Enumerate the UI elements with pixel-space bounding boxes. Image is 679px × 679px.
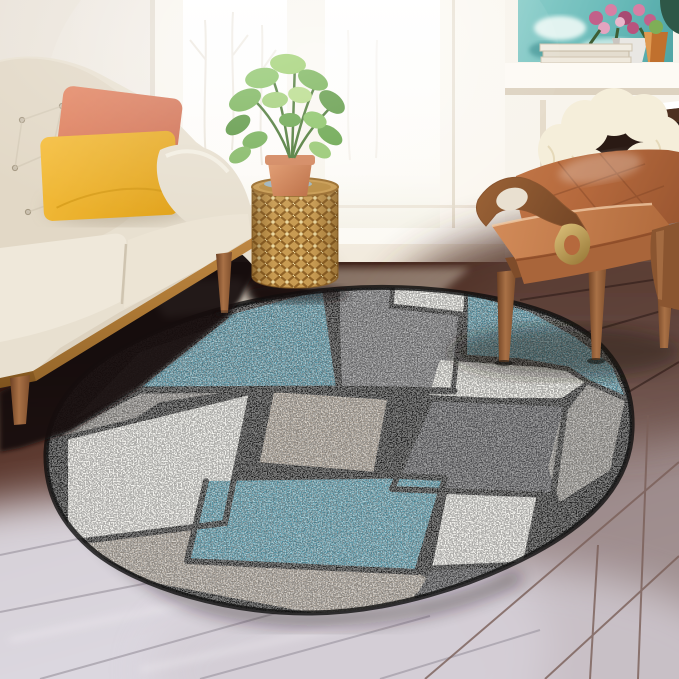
leg-contact-shadow-2 [587, 358, 605, 364]
leg-contact-shadow [495, 360, 513, 366]
living-room-photo [0, 0, 679, 679]
chair-shadow [450, 326, 679, 378]
succulent [649, 20, 663, 34]
scene-canvas [0, 0, 679, 679]
brass-cutout [564, 235, 580, 255]
leg-shadow [214, 311, 234, 317]
